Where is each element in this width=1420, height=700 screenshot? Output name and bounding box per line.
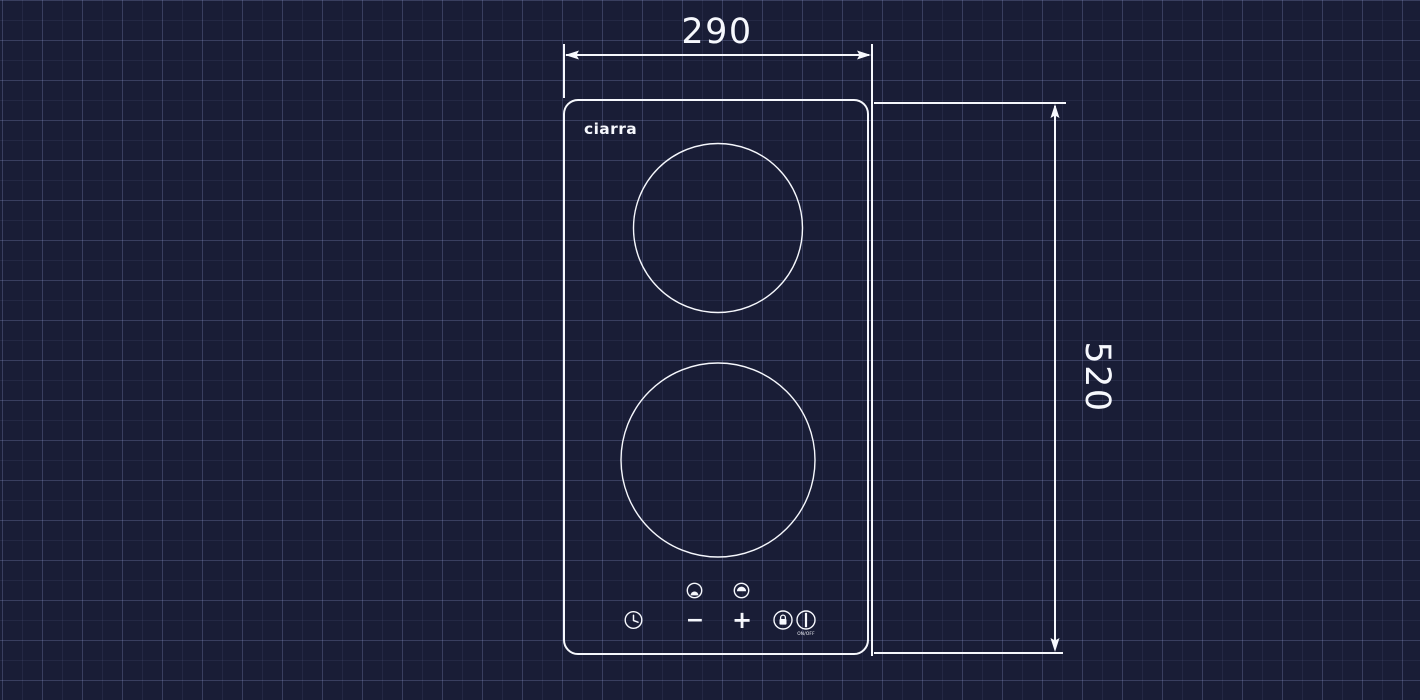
blueprint-canvas: ciarra − + bbox=[0, 0, 1420, 700]
dimension-drawing: ciarra − + bbox=[0, 0, 1420, 700]
height-dimension-label: 520 bbox=[1077, 341, 1117, 412]
power-icon: ON/OFF bbox=[797, 611, 815, 637]
rear-zone-circle bbox=[634, 144, 803, 313]
brand-logo: ciarra bbox=[584, 120, 637, 138]
height-dimension: 520 bbox=[874, 103, 1117, 653]
child-lock-icon bbox=[774, 611, 792, 629]
hob-glass-outline bbox=[564, 100, 868, 654]
front-zone-indicator-icon bbox=[687, 583, 701, 597]
width-dimension: 290 bbox=[564, 12, 872, 656]
width-dimension-label: 290 bbox=[681, 12, 752, 52]
front-zone-circle bbox=[621, 363, 815, 557]
plus-key: + bbox=[732, 606, 752, 634]
rear-zone-indicator-icon bbox=[734, 583, 748, 597]
hob-outline-group: ciarra bbox=[564, 100, 868, 654]
control-panel: − + ON/OFF bbox=[625, 583, 815, 637]
minus-key: − bbox=[686, 608, 704, 633]
power-label: ON/OFF bbox=[797, 631, 815, 637]
timer-clock-icon bbox=[625, 612, 642, 629]
